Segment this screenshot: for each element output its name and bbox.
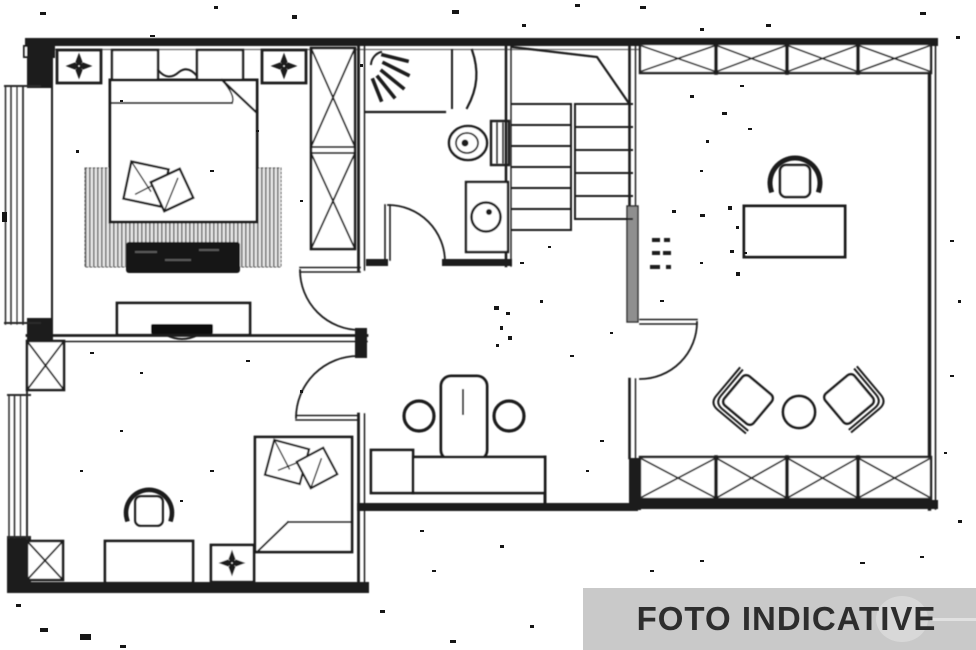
office-desk [744,206,845,257]
staircase [512,47,632,230]
armchair-right [822,367,887,432]
window-band-top [640,44,931,73]
double-bed [110,80,257,222]
armchair-left [710,368,775,433]
round-side-table [783,396,815,428]
shower-glass [467,50,476,108]
single-bed [255,437,352,552]
washbasin [466,182,508,252]
window-left-upper [5,86,40,324]
ceiling-light-icon [272,54,296,78]
stair-break-line [512,47,628,102]
bedroom-door-swing [300,268,360,331]
window-left-lower [8,392,30,541]
stair-flight-right [575,104,632,219]
window-band-bottom [640,457,931,499]
dimension-marks [650,238,671,269]
stool [404,401,434,431]
second-bedroom-door-swing [296,356,358,420]
stair-flight-left [512,104,571,230]
office-chair [126,490,172,526]
bathroom-door-swing [385,205,445,262]
page: { "banner": { "label": "FOTO INDICATIVE"… [0,0,976,650]
second-bedroom [105,437,352,583]
toilet [449,121,509,165]
ceiling-light-icon [67,54,91,78]
kitchen-counter [371,450,545,505]
photo-indicative-banner: FOTO INDICATIVE [583,588,976,650]
tv-console [117,303,250,339]
master-bedroom [57,48,355,339]
study-door-swing [640,320,697,380]
banner-label: FOTO INDICATIVE [637,600,937,638]
office-chair [770,158,820,197]
office-desk [105,541,193,583]
high-table [441,376,487,460]
wall-pillar-boxes [27,341,64,580]
stool [494,401,524,431]
banner-watermark-line [930,618,976,621]
floor-plan-drawing [0,0,976,650]
wardrobe-unit [311,48,355,249]
bathroom [366,50,509,262]
study-living-room [640,44,931,499]
storage-bench [126,242,240,273]
shower-head-icon [371,52,408,100]
